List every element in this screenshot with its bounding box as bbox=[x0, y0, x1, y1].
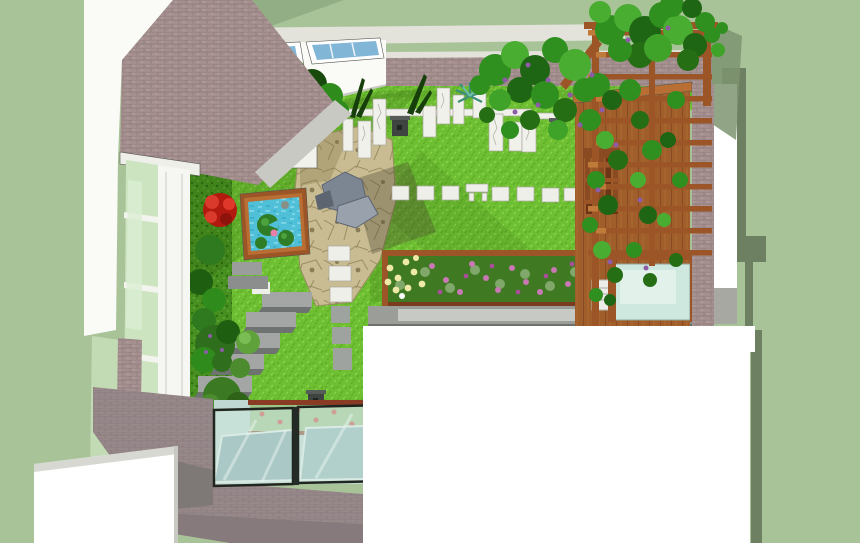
right-gray-block bbox=[713, 288, 737, 324]
garden-design-render: ­ bbox=[0, 0, 860, 543]
pond-flower bbox=[271, 230, 278, 237]
stone-lantern-1 bbox=[390, 116, 410, 136]
garden-render-canvas: ­ bbox=[0, 0, 860, 543]
foreground-roof-white bbox=[363, 326, 755, 543]
red-shrub-small bbox=[203, 193, 237, 227]
pond-step-upper bbox=[232, 262, 262, 275]
pond-step-lower bbox=[228, 276, 268, 289]
